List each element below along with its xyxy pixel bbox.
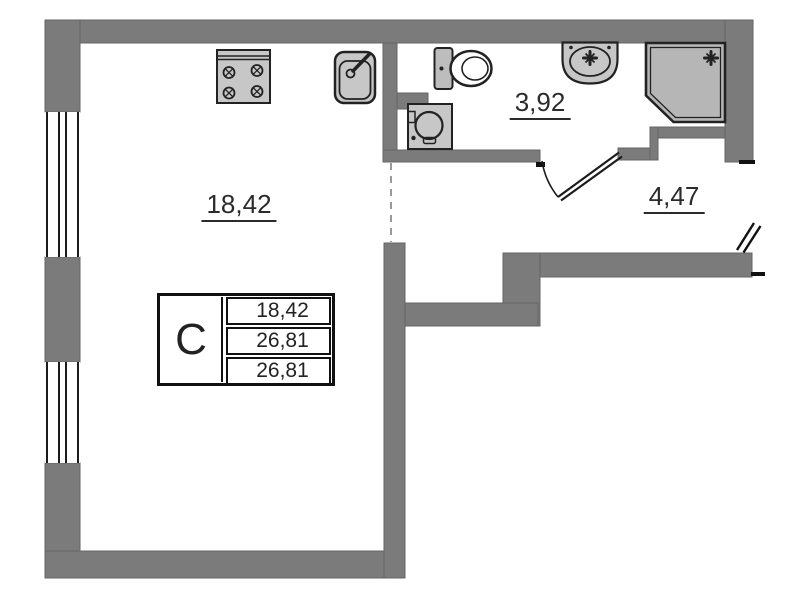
unit-type-cell: С <box>161 297 223 382</box>
wall-hall-step-horizontal <box>405 303 538 326</box>
unit-legend-table: С 18,42 26,81 26,81 <box>157 293 335 386</box>
shower-cabin-icon <box>646 43 725 122</box>
wall-bathroom-bottom-left <box>383 150 540 162</box>
legend-row-living-area: 18,42 <box>226 297 331 325</box>
unit-areas-column: 18,42 26,81 26,81 <box>226 297 331 382</box>
legend-row-total-area: 26,81 <box>226 327 331 355</box>
hallway-area-label: 4,47 <box>644 183 705 214</box>
window-opening <box>45 362 80 463</box>
wall-bathroom-step <box>650 127 658 160</box>
washbasin-icon <box>563 43 618 84</box>
washing-machine-icon <box>408 104 452 149</box>
wall-living-right <box>384 243 405 578</box>
entry-threshold-bottom-tick <box>751 272 765 276</box>
wall-bathroom-bottom-right-high <box>650 127 728 138</box>
wall-bathroom-left <box>383 43 397 162</box>
window-opening <box>45 112 80 257</box>
window-left-upper <box>45 112 80 257</box>
floor-plan-canvas <box>0 0 799 600</box>
wall-top <box>45 20 753 43</box>
kitchen-sink-icon <box>335 52 375 103</box>
bathroom-door-swing-icon <box>536 153 622 201</box>
window-left-lower <box>45 362 80 463</box>
wall-left-middle <box>45 257 80 362</box>
living-room-area-label: 18,42 <box>201 191 276 222</box>
wall-bottom <box>45 551 405 578</box>
bathroom-area-label: 3,92 <box>510 89 571 120</box>
wall-left-upper <box>45 20 80 112</box>
entry-threshold-top-tick <box>739 160 755 164</box>
legend-row-overall-area: 26,81 <box>226 357 331 385</box>
toilet-icon <box>435 48 492 89</box>
wall-right-outer <box>725 20 753 162</box>
stove-icon <box>217 50 270 103</box>
walls <box>45 20 753 578</box>
floor-plan: 18,42 3,92 4,47 С 18,42 26,81 26,81 <box>0 0 799 600</box>
